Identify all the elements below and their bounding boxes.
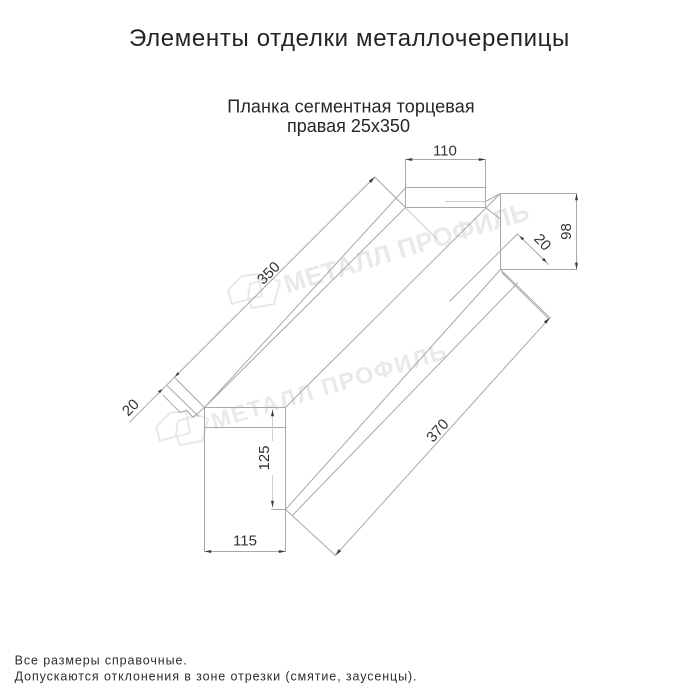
svg-text:Планка сегментная торцевая: Планка сегментная торцевая <box>227 96 474 116</box>
svg-text:110: 110 <box>433 143 457 160</box>
svg-text:Все размеры справочные.: Все размеры справочные. <box>15 654 188 668</box>
svg-text:Допускаются отклонения в зоне: Допускаются отклонения в зоне отрезки (с… <box>15 669 418 683</box>
svg-text:98: 98 <box>558 223 575 240</box>
svg-text:125: 125 <box>256 445 273 470</box>
svg-text:115: 115 <box>233 533 257 550</box>
svg-text:Элементы отделки металлочерепи: Элементы отделки металлочерепицы <box>129 25 570 52</box>
svg-text:правая 25х350: правая 25х350 <box>287 116 410 136</box>
